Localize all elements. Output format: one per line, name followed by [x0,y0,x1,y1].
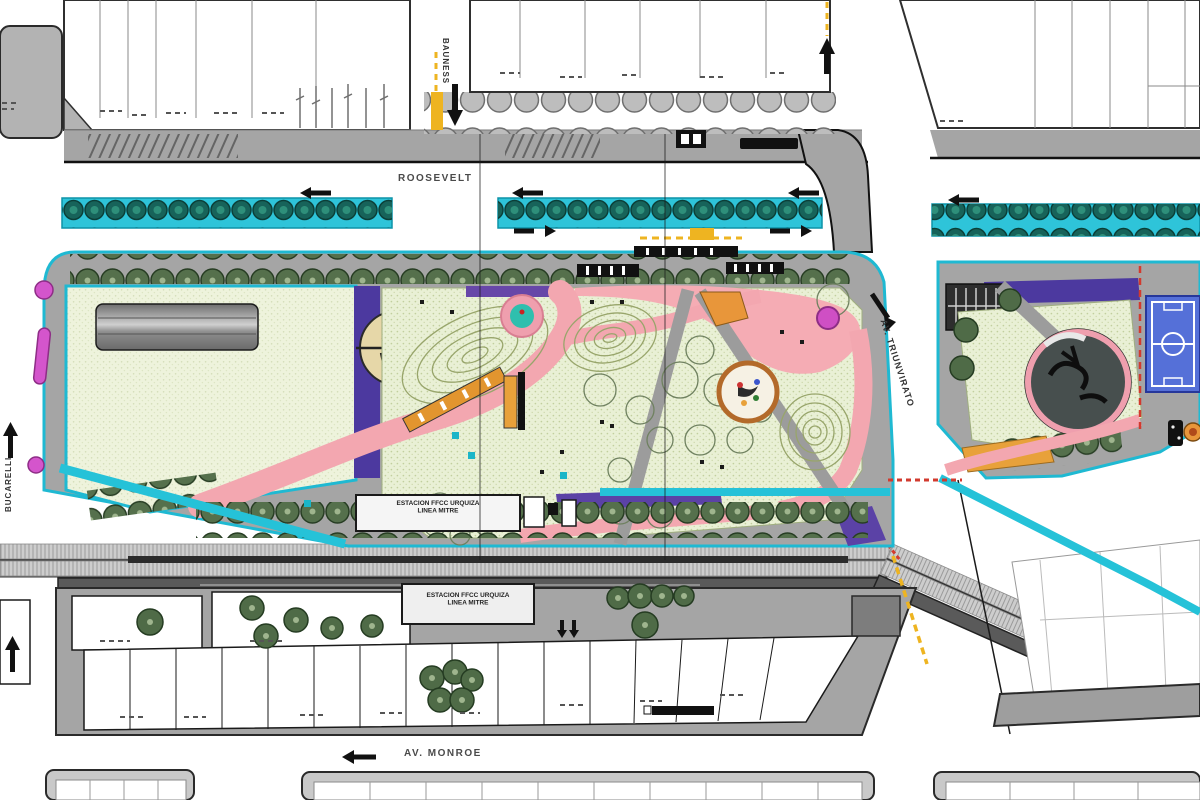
roosevelt-tree-rows [62,198,1200,236]
play-plaza [719,363,777,421]
micro-label [560,704,584,706]
roosevelt-bike-lane [640,228,742,240]
micro-label [214,112,240,114]
bus-shelter-icon [652,706,714,715]
micro-label [300,714,326,716]
rail-platform-edge [128,556,848,563]
station-building-label: ESTACION FFCC URQUIZA LINEA MITRE [409,593,527,608]
micro-label [500,72,520,74]
site-plan-drawing [0,0,1200,800]
micro-label [250,640,286,642]
block-top-left-corner [0,26,62,138]
micro-label [700,76,724,78]
roosevelt-street-label: ROOSEVELT [398,173,472,184]
micro-label [560,76,582,78]
micro-label [184,716,206,718]
micro-label [622,74,640,76]
micro-label [940,120,966,122]
sports-field [1146,296,1200,392]
roosevelt-arrow-left-icon [300,187,331,199]
micro-label [2,108,14,110]
bauness-street-label: BAUNESS [441,38,450,84]
micro-label [2,102,16,104]
micro-label [132,114,150,116]
round-plaza [501,295,543,337]
monroe-arrow-left-icon [342,750,376,764]
micro-label [100,110,122,112]
roosevelt-arrow-left-icon [512,187,543,199]
park-building [96,304,258,350]
play-tower [504,376,517,428]
micro-label [120,716,144,718]
site-plan-canvas: ROOSEVELT BAUNESS BUCARELLI AV. TRIUNVIR… [0,0,1200,800]
roosevelt-arrow-left-icon [788,187,819,199]
bus-shelter-icon [740,138,798,149]
micro-label [720,694,744,696]
block-top-mid [470,0,830,92]
cyan-path [600,488,890,496]
micro-label [460,712,480,714]
bottom-blocks [46,770,1200,800]
micro-label [166,112,186,114]
micro-label [770,72,788,74]
bus-stop-hatch [505,134,600,158]
micro-label [262,112,284,114]
micro-label [380,712,402,714]
bus-stop-hatch [88,134,238,158]
gray-tree-row [424,92,836,134]
skate-bowl [1025,329,1131,435]
block-top-right [900,0,1200,158]
crosswalk-icon [676,130,706,148]
micro-label [640,700,662,702]
monroe-street-label: AV. MONROE [404,748,482,759]
bucarelli-street-label: BUCARELLI [4,457,13,512]
magenta-garden-circle [817,307,839,329]
mast [518,372,525,430]
station-platform-label: ESTACION FFCC URQUIZA LINEA MITRE [364,501,511,516]
micro-label [100,640,130,642]
